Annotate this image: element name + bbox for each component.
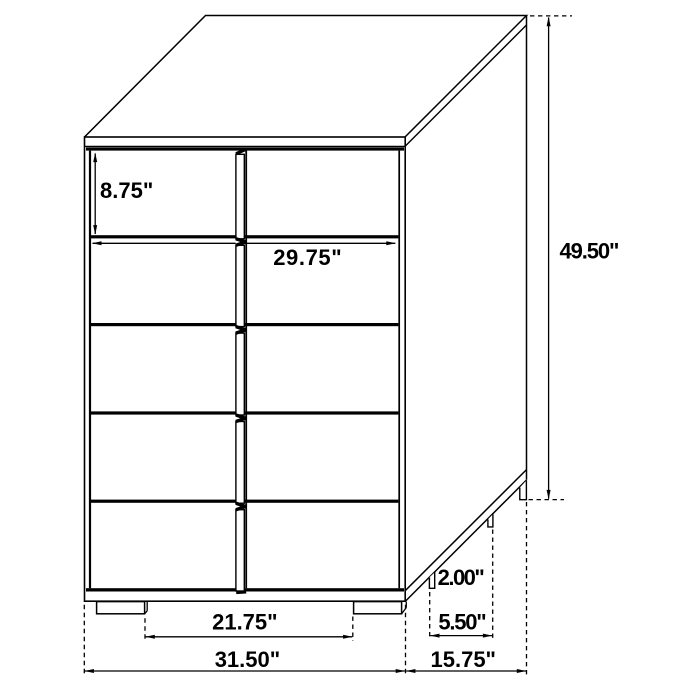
svg-text:21.75": 21.75" — [212, 610, 277, 635]
svg-text:2.00": 2.00" — [438, 565, 484, 590]
svg-text:15.75": 15.75" — [431, 647, 496, 672]
svg-text:29.75": 29.75" — [273, 245, 342, 270]
svg-text:5.50": 5.50" — [438, 610, 485, 635]
svg-text:8.75": 8.75" — [100, 178, 153, 203]
svg-text:49.50": 49.50" — [560, 239, 619, 264]
svg-text:31.50": 31.50" — [215, 647, 280, 672]
